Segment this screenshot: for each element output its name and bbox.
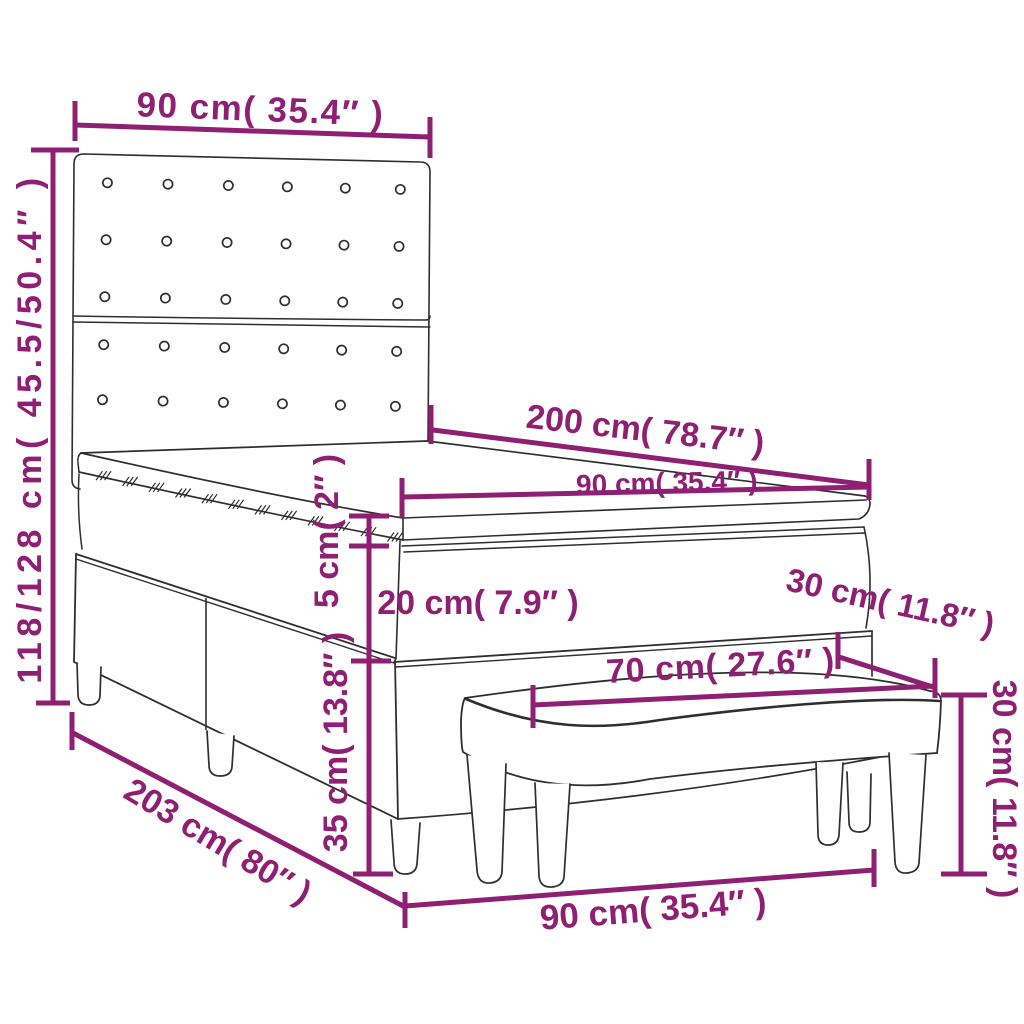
svg-text:20 cm( 7.9″ ): 20 cm( 7.9″ )	[377, 584, 579, 622]
svg-text:90 cm( 35.4″ ): 90 cm( 35.4″ )	[576, 465, 758, 501]
svg-text:35 cm( 13.8″ ): 35 cm( 13.8″ )	[317, 632, 355, 852]
svg-text:5 cm( 2″ ): 5 cm( 2″ )	[308, 454, 346, 608]
svg-text:30 cm( 11.8″ ): 30 cm( 11.8″ )	[985, 680, 1023, 899]
svg-text:118/128 cm( 45.5/50.4″ ): 118/128 cm( 45.5/50.4″ )	[11, 172, 49, 683]
